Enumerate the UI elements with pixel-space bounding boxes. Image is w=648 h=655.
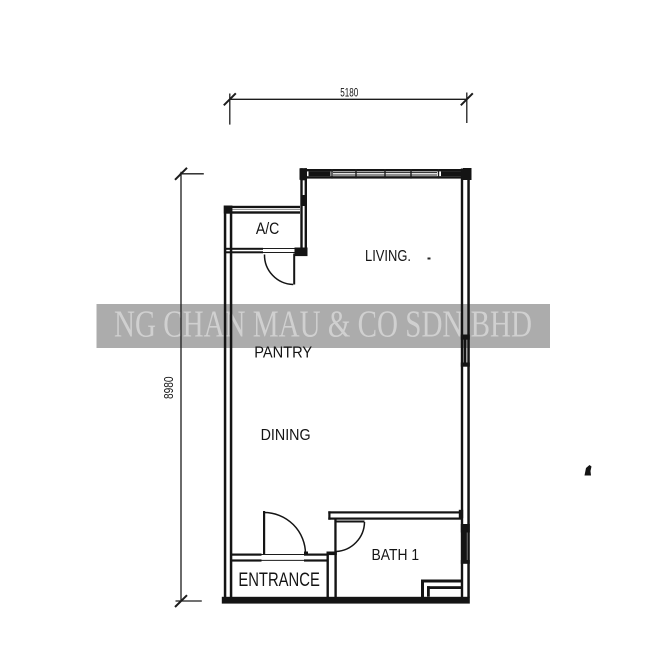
svg-text:8980: 8980 [162, 376, 176, 399]
svg-text:A/C: A/C [256, 220, 280, 238]
svg-text:DINING: DINING [261, 427, 311, 444]
svg-text:PANTRY: PANTRY [254, 345, 312, 362]
svg-text:ENTRANCE: ENTRANCE [238, 570, 320, 591]
svg-text:BATH 1: BATH 1 [372, 547, 420, 564]
svg-text:LIVING.: LIVING. [365, 248, 411, 265]
svg-text:5180: 5180 [340, 86, 358, 100]
